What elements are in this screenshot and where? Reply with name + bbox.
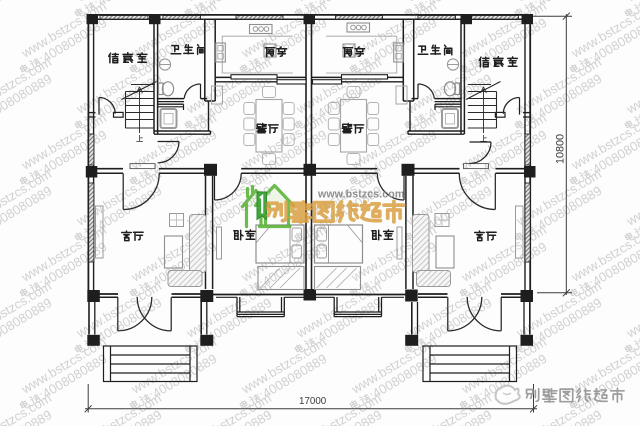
svg-text:www.bstzcs.com: www.bstzcs.com	[317, 189, 404, 201]
svg-text:10800: 10800	[555, 134, 567, 164]
svg-text:17000: 17000	[299, 396, 327, 407]
